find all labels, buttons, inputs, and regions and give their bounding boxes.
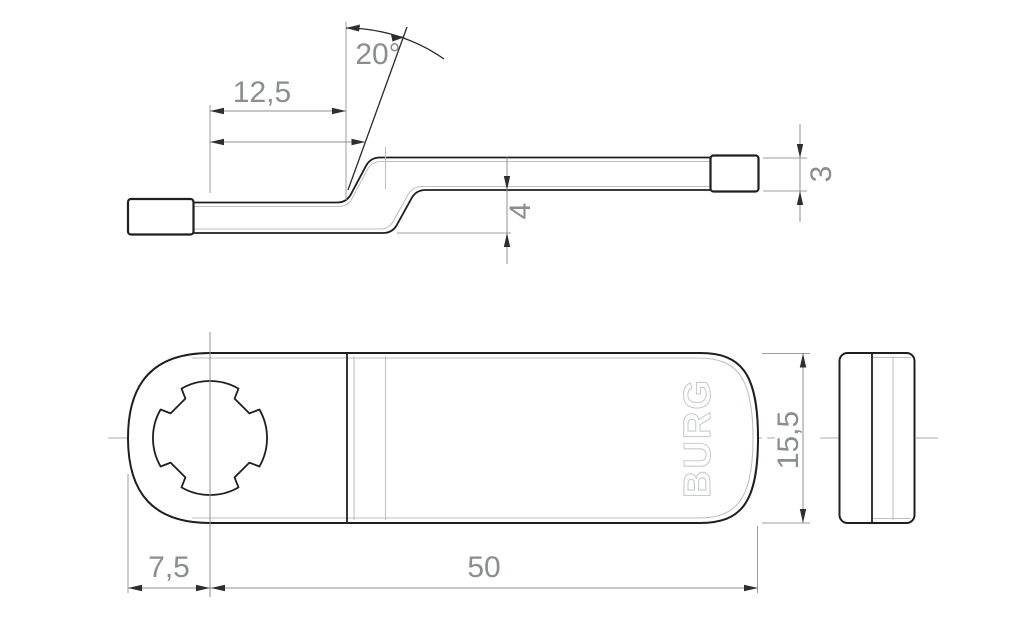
- side-bottom-edge: [193, 190, 710, 233]
- step-height-value: 4: [504, 203, 537, 220]
- technical-drawing: 20° 12,5 4 3 B: [0, 0, 1024, 643]
- end-view-outline: [840, 353, 915, 523]
- arrow-50-right: [744, 585, 758, 591]
- side-top-edge: [193, 158, 710, 203]
- angle-value: 20°: [355, 38, 400, 71]
- thickness-value: 3: [805, 166, 838, 183]
- arrow-7-5-left: [128, 585, 142, 591]
- side-profile-view: [128, 156, 759, 235]
- side-bottom-inner-edge: [193, 187, 710, 230]
- offset-length-value: 12,5: [233, 76, 291, 109]
- arrow-3-top: [797, 144, 803, 158]
- arrow-aux-right: [352, 139, 366, 145]
- arrow-4-top: [504, 176, 510, 190]
- arrow-7-5-right: [196, 585, 210, 591]
- end-view: [820, 353, 938, 523]
- side-right-end-block: [711, 156, 759, 192]
- arrow-12-5-right: [332, 108, 346, 114]
- angle-dimension: 20°: [346, 22, 444, 200]
- width-value: 15,5: [772, 411, 805, 469]
- arrow-4-bottom: [504, 233, 510, 247]
- step-height-dimension: 4: [397, 158, 537, 265]
- arrow-50-left: [211, 585, 225, 591]
- drawing-sheet: 20° 12,5 4 3 B: [0, 0, 1024, 643]
- arrow-aux-left: [210, 139, 224, 145]
- side-left-end-block: [128, 199, 194, 235]
- arrow-15-5-bottom: [800, 509, 806, 523]
- length-value: 50: [467, 551, 500, 584]
- end-to-hole-value: 7,5: [148, 551, 190, 584]
- plan-view: BURG: [108, 332, 775, 597]
- arrow-12-5-left: [210, 108, 224, 114]
- arrow-3-bottom: [797, 191, 803, 205]
- arrow-15-5-top: [800, 354, 806, 368]
- side-top-inner-edge: [193, 162, 710, 207]
- brand-logo: BURG: [677, 378, 719, 498]
- angle-arrow-left: [346, 25, 360, 32]
- offset-length-dimension: 12,5: [210, 76, 366, 193]
- thickness-dimension: 3: [763, 124, 838, 222]
